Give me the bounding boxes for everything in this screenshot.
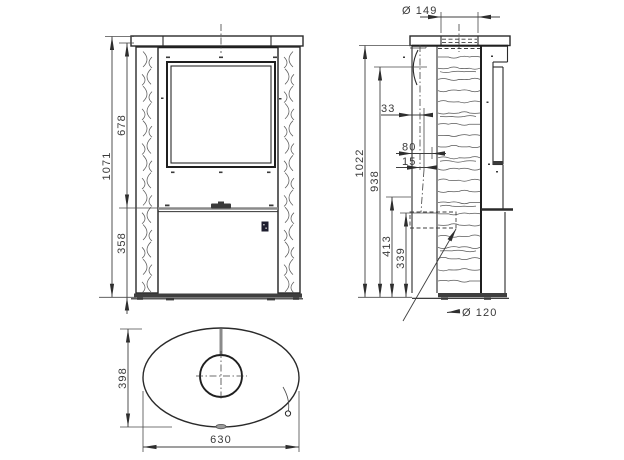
stone-column-left bbox=[136, 47, 158, 293]
dim-lower-height: 358 bbox=[116, 232, 128, 254]
stone-texture-stroke bbox=[438, 145, 480, 147]
stone-texture-stroke bbox=[438, 235, 480, 237]
stone-texture-stroke bbox=[440, 161, 476, 163]
screw-mark bbox=[488, 164, 490, 166]
foot bbox=[166, 298, 174, 300]
foot bbox=[293, 298, 299, 300]
stone-texture-stroke bbox=[438, 56, 480, 58]
base-plinth-side bbox=[438, 293, 507, 297]
stone-texture-stroke bbox=[440, 71, 476, 72]
foot bbox=[267, 298, 275, 300]
stone-texture-stroke bbox=[438, 90, 480, 92]
stone-texture-stroke bbox=[438, 168, 480, 170]
stone-texture-stroke bbox=[440, 205, 476, 206]
inlet-leader-line bbox=[403, 229, 456, 321]
foot bbox=[484, 297, 491, 299]
side-dimensions: Ø 149 1022 938 413 339 33 80 15 bbox=[354, 5, 500, 321]
stone-texture-stroke bbox=[438, 202, 480, 204]
fire-window-glass bbox=[171, 66, 271, 163]
rear-flue-outlet-arc bbox=[413, 50, 418, 85]
hinge-mark bbox=[161, 98, 164, 100]
stone-texture-stroke bbox=[438, 67, 480, 69]
side-view bbox=[403, 24, 513, 300]
stone-wave-texture bbox=[438, 56, 480, 282]
vent-slot bbox=[166, 57, 170, 59]
reference-line bbox=[421, 170, 424, 212]
stone-texture-stroke bbox=[438, 101, 480, 103]
stone-texture-stroke bbox=[438, 112, 480, 114]
brand-plate-detail bbox=[263, 224, 264, 225]
screw-mark bbox=[491, 56, 493, 58]
foot bbox=[137, 298, 143, 300]
screw-mark bbox=[165, 205, 170, 207]
vent-slot bbox=[273, 57, 277, 59]
screw-mark bbox=[219, 172, 223, 174]
stone-texture-stroke bbox=[438, 280, 480, 282]
door-handle-knob-top bbox=[285, 411, 290, 416]
door-handle bbox=[211, 204, 231, 209]
dim-offset-80: 80 bbox=[402, 142, 416, 154]
dim-depth: 398 bbox=[117, 367, 129, 389]
screw-mark bbox=[403, 57, 405, 59]
dim-body-height: 1022 bbox=[354, 149, 366, 178]
stone-texture-stroke bbox=[438, 190, 480, 192]
fire-window-frame bbox=[167, 62, 275, 167]
dim-inlet-top-height: 413 bbox=[381, 235, 393, 257]
screw-mark bbox=[496, 171, 498, 173]
stone-texture-stroke bbox=[438, 247, 480, 249]
stone-texture-stroke bbox=[438, 135, 480, 137]
dim-flue-diameter: Ø 149 bbox=[402, 5, 437, 17]
stove-dimension-drawing: 1071 678 358 bbox=[0, 0, 624, 460]
hinge-mark bbox=[279, 98, 282, 100]
dim-rear-flue-height: 938 bbox=[369, 170, 381, 192]
dim-upper-height: 678 bbox=[116, 114, 128, 136]
hinge-tab bbox=[216, 424, 226, 428]
door-handle-knob bbox=[218, 202, 224, 205]
screw-mark bbox=[487, 102, 489, 104]
technical-drawing-canvas: 1071 678 358 bbox=[0, 0, 624, 460]
stone-texture-stroke bbox=[438, 224, 480, 226]
screw-mark bbox=[171, 172, 175, 174]
stone-texture-stroke bbox=[438, 257, 480, 259]
stone-texture-stroke bbox=[440, 116, 476, 117]
window-frame-bottom bbox=[493, 161, 503, 165]
brand-plate bbox=[262, 222, 269, 232]
screw-mark bbox=[269, 205, 274, 207]
vent-slot bbox=[219, 57, 223, 59]
stone-column-right bbox=[278, 47, 300, 293]
dim-flue-offset: 33 bbox=[381, 103, 395, 115]
dim-overall-height: 1071 bbox=[101, 152, 113, 181]
brand-plate-detail bbox=[265, 228, 266, 229]
top-plate bbox=[131, 36, 303, 46]
screw-mark bbox=[267, 172, 271, 174]
top-view bbox=[143, 328, 299, 429]
dim-offset-15: 15 bbox=[402, 156, 416, 168]
stone-texture-stroke bbox=[438, 179, 480, 181]
stone-texture-stroke bbox=[438, 78, 480, 80]
front-view bbox=[131, 24, 303, 300]
stone-texture-stroke bbox=[438, 213, 480, 215]
stone-texture-stroke bbox=[438, 157, 480, 159]
dim-inlet-height: 339 bbox=[395, 247, 407, 269]
dim-inlet-diameter: Ø 120 bbox=[462, 307, 497, 319]
stone-texture-stroke bbox=[438, 123, 480, 125]
stone-texture-stroke bbox=[440, 250, 476, 252]
dim-width: 630 bbox=[210, 434, 232, 446]
top-plate-side bbox=[410, 36, 510, 46]
base-plinth bbox=[134, 294, 302, 298]
foot bbox=[441, 297, 448, 299]
stone-texture-stroke bbox=[438, 269, 480, 271]
